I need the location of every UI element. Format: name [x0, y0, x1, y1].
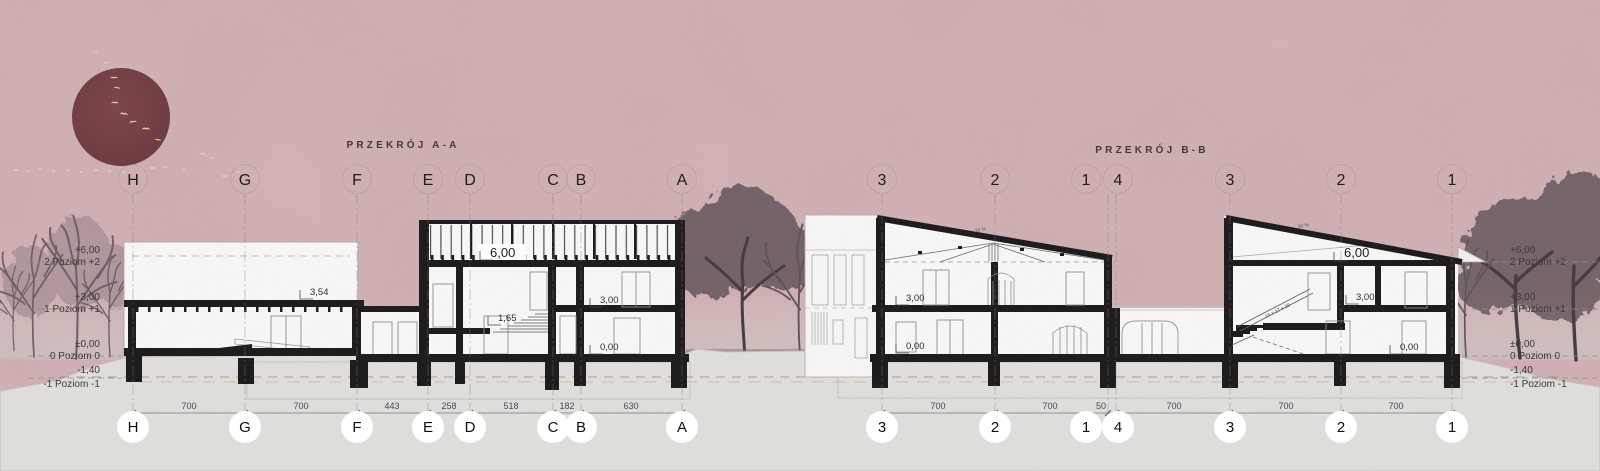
grid-top-a-5: C: [547, 172, 559, 189]
grid-top-a-6: B: [576, 172, 587, 189]
grid-bottom-a-7: A: [677, 419, 687, 436]
mark-a-stairmid: 1,65: [498, 313, 517, 324]
level-right-name-3: -1 Poziom -1: [1510, 379, 1567, 390]
paper-grain: [0, 0, 1600, 471]
level-left-elev-1: +3,00: [75, 292, 101, 303]
grid-top-b-6: 1: [1448, 172, 1457, 189]
level-right-elev-2: ±0,00: [1510, 339, 1535, 350]
grid-bottom-b-3: 4: [1114, 419, 1122, 436]
architectural-board: PRZEKRÓJ A-A PRZEKRÓJ B-B H G F E D C B …: [0, 0, 1600, 471]
level-left-elev-2: ±0,00: [75, 339, 100, 350]
dim-a-6: 630: [623, 401, 638, 411]
grid-top-a-2: F: [352, 172, 362, 189]
level-right-elev-1: +3,00: [1510, 292, 1536, 303]
dim-a-0: 700: [181, 401, 196, 411]
dim-b-1: 700: [1042, 401, 1057, 411]
grid-bottom-b-4: 3: [1226, 419, 1234, 436]
section-a-title: PRZEKRÓJ A-A: [346, 138, 459, 151]
mark-a-parapet: 3,54: [310, 287, 329, 298]
sections-drawing: PRZEKRÓJ A-A PRZEKRÓJ B-B H G F E D C B …: [0, 0, 1600, 471]
dim-a-3: 258: [441, 401, 456, 411]
grid-bottom-a-1: G: [239, 419, 251, 436]
section-b-title: PRZEKRÓJ B-B: [1095, 143, 1208, 156]
dim-a-1: 700: [293, 401, 308, 411]
grid-bottom-b-0: 3: [878, 419, 886, 436]
grid-bottom-a-3: E: [423, 419, 433, 436]
mark-br-roof: 6,00: [1344, 245, 1369, 260]
grid-top-a-1: G: [239, 172, 251, 189]
grid-top-a-0: H: [127, 172, 139, 189]
grid-top-a-3: E: [423, 172, 434, 189]
dim-b-4: 700: [1278, 401, 1293, 411]
level-left-elev-3: -1,40: [77, 365, 100, 376]
grid-top-b-5: 2: [1337, 172, 1346, 189]
level-right-name-1: 1 Poziom +1: [1510, 304, 1566, 315]
level-left-name-1: 1 Poziom +1: [44, 304, 100, 315]
grid-top-b-3: 4: [1114, 172, 1123, 189]
grid-top-b-0: 3: [878, 172, 887, 189]
grid-bottom-a-6: B: [576, 419, 586, 436]
mark-br-floor1: 3,00: [1356, 292, 1375, 303]
dim-b-2: 50: [1096, 401, 1106, 411]
level-left-elev-0: +6,00: [75, 245, 101, 256]
mark-a-floor1: 3,00: [600, 295, 619, 306]
dim-a-4: 518: [503, 401, 518, 411]
dim-a-5: 182: [559, 401, 574, 411]
level-right-elev-0: +6,00: [1510, 245, 1536, 256]
grid-top-b-2: 1: [1082, 172, 1091, 189]
grid-top-b-4: 3: [1226, 172, 1235, 189]
mark-br-floor0: 0,00: [1400, 342, 1419, 353]
dim-a-2: 443: [384, 401, 399, 411]
grid-bottom-b-2: 1: [1082, 419, 1090, 436]
grid-bottom-b-1: 2: [991, 419, 999, 436]
level-left-name-0: 2 Poziom +2: [44, 257, 100, 268]
grid-bottom-a-4: D: [465, 419, 476, 436]
level-left-name-3: -1 Poziom -1: [43, 379, 100, 390]
grid-bottom-a-2: F: [352, 419, 361, 436]
level-right-name-0: 2 Poziom +2: [1510, 257, 1566, 268]
dim-b-3: 700: [1166, 401, 1181, 411]
grid-top-a-4: D: [464, 172, 476, 189]
mark-bl-floor1: 3,00: [906, 293, 925, 304]
grid-bottom-a-0: H: [128, 419, 139, 436]
grid-bottom-b-6: 1: [1448, 419, 1456, 436]
grid-top-b-1: 2: [991, 172, 1000, 189]
dim-b-0: 700: [930, 401, 945, 411]
dim-b-5: 700: [1388, 401, 1403, 411]
grid-bottom-a-5: C: [548, 419, 559, 436]
mark-a-floor0: 0,00: [600, 342, 619, 353]
grid-top-a-7: A: [677, 172, 688, 189]
mark-bl-floor0: 0,00: [906, 341, 925, 352]
level-right-name-2: 0 Poziom 0: [1510, 351, 1560, 362]
grid-bottom-b-5: 2: [1337, 419, 1345, 436]
mark-a-roof: 6,00: [490, 245, 515, 260]
level-left-name-2: 0 Poziom 0: [50, 351, 100, 362]
level-right-elev-3: -1,40: [1510, 365, 1533, 376]
